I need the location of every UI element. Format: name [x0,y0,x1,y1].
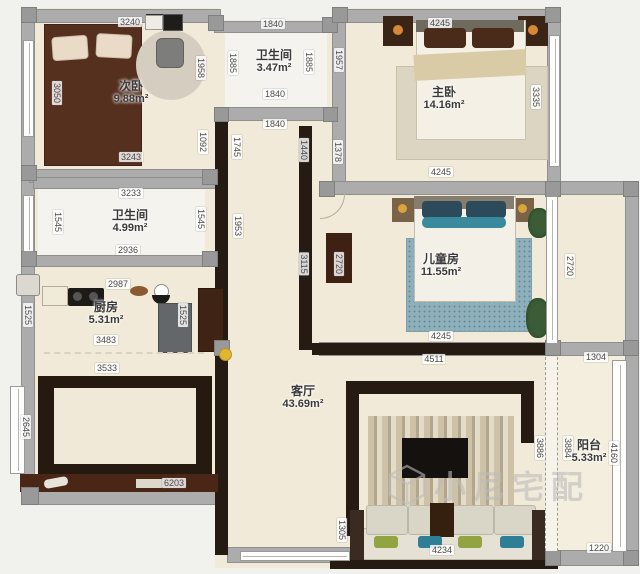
room-name: 卫生间 [256,49,292,62]
door-knob-icon [219,348,232,361]
room-area: 5.33m² [572,452,607,465]
pillow [422,201,462,218]
pillar [333,8,347,22]
dim-label: 1958 [196,56,206,80]
room-area: 3.47m² [256,62,292,75]
cutting-board-icon [42,286,68,306]
room-name: 客厅 [283,385,324,398]
dim-label: 1305 [337,518,347,542]
room-area: 11.55m² [421,266,461,279]
pillar [22,8,36,22]
washer-icon [145,15,163,30]
dim-label: 2936 [116,245,140,255]
room-label: 次卧9.88m² [114,80,149,106]
dim-label: 2720 [565,254,575,278]
bolster-pillow [422,217,506,228]
lamp-icon [518,204,527,213]
dim-label: 3243 [119,152,143,162]
dim-label: 4245 [428,18,452,28]
dim-label: 4511 [422,354,445,364]
dining-rug-inner [54,388,196,464]
lamp-icon [398,204,407,213]
room-area: 4.99m² [112,222,148,235]
dim-label: 3233 [119,188,143,198]
pillar [209,16,223,30]
desk-chair [156,38,184,68]
room-name: 次卧 [114,80,149,93]
window-master-east [549,35,560,167]
dim-label: 2720 [334,252,344,276]
room-label: 儿童房11.55m² [421,253,461,279]
dim-label: 3533 [95,363,119,373]
dim-label: 1525 [23,303,33,327]
washing-machine-icon [16,274,40,296]
wall-master-bottom [320,182,638,194]
watermark: 小尼宅配 [388,462,590,508]
sofa-pillow [500,536,524,548]
room-name: 厨房 [89,301,124,314]
sofa-side-table [430,503,454,537]
sofa-back-cushion [366,505,408,535]
dim-label: 1092 [198,130,208,154]
pillar [203,170,217,184]
room-name: 阳台 [572,439,607,452]
dim-label: 1545 [53,210,63,234]
sofa-armrest [350,510,364,560]
burner-icon [73,292,82,301]
sofa-armrest [532,510,546,560]
dim-label: 3240 [118,17,142,27]
dim-label: 1840 [263,119,287,129]
dim-label: 1525 [178,303,188,327]
dim-label: 3886 [535,436,545,460]
sofa-pillow [374,536,398,548]
pillow [466,201,506,218]
pillar [203,252,217,266]
dim-label: 4245 [429,331,453,341]
room-name: 卫生间 [112,209,148,222]
room-label: 厨房5.31m² [89,301,124,327]
dim-label: 1440 [299,138,309,162]
pillar [546,182,560,196]
dim-label: 1885 [228,51,238,75]
pillow [95,33,132,59]
dim-label: 4234 [430,545,454,555]
pillow [51,35,89,61]
wall-bath2-top [34,178,218,188]
watermark-logo-icon [388,464,426,506]
room-name: 儿童房 [421,253,461,266]
room-area: 43.69m² [283,398,324,411]
dish-icon [130,286,148,296]
pillar [624,341,638,355]
sofa-back-cushion [452,505,494,535]
wall-bath2-bottom [34,256,218,266]
sofa-pillow [458,536,482,548]
cabinet-icon [163,14,183,31]
lamp-icon [528,25,538,35]
wall-east [626,182,638,565]
room-label: 阳台5.33m² [572,439,607,465]
pillar [624,551,638,565]
floor-plan: 小尼宅配 32401840424518401840324332332936298… [0,0,640,574]
balcony-sliding-door [545,357,558,551]
window-living-south [240,551,350,561]
window-secondary-west [23,40,34,137]
room-label: 卫生间3.47m² [256,49,292,75]
sideboard-decor-icon [136,479,162,488]
wall-dining-bottom [22,492,224,504]
dim-label: 1953 [233,214,243,238]
room-area: 14.16m² [424,99,465,112]
pillar [324,108,337,121]
tv-feature-frame-top [346,381,534,394]
dim-label: 3115 [299,252,309,275]
sofa-back-cushion [494,505,536,535]
room-name: 主卧 [424,86,465,99]
room-label: 客厅43.69m² [283,385,324,411]
window-kids-east [546,196,558,344]
dim-label: 1957 [334,48,344,72]
pillar [22,166,36,180]
dim-label: 2987 [106,279,130,289]
dim-label: 1220 [587,543,611,553]
dim-label: 4245 [429,167,453,177]
window-bath2-west [23,195,34,252]
lamp-icon [393,25,403,35]
pillar [22,488,38,504]
dim-label: 2645 [21,415,31,439]
pillar [320,182,334,196]
dim-label: 3483 [94,335,118,345]
room-area: 5.31m² [89,314,124,327]
dim-label: 1840 [263,89,287,99]
wall-master-left [333,10,345,194]
watermark-text: 小尼宅配 [434,462,590,508]
dim-label: 1840 [261,19,285,29]
dim-label: 1745 [232,135,242,159]
room-label: 主卧14.16m² [424,86,465,112]
dim-label: 1545 [196,207,206,231]
pillow [424,28,466,48]
dim-label: 1304 [584,352,608,362]
pillar [546,8,560,22]
dim-label: 4160 [609,441,619,465]
pillar [546,551,560,565]
pillar [624,182,638,196]
tv-feature-frame-right [521,381,534,443]
dim-label: 3050 [52,81,62,105]
dim-label: 1885 [304,50,314,74]
pillar [215,108,228,121]
dim-label: 1378 [333,140,343,164]
room-label: 卫生间4.99m² [112,209,148,235]
dim-label: 3335 [531,85,541,109]
kitchen-open-edge [44,352,204,354]
room-area: 9.88m² [114,93,149,106]
dim-label: 6203 [162,478,186,488]
pillar [22,252,36,266]
pillow [472,28,514,48]
